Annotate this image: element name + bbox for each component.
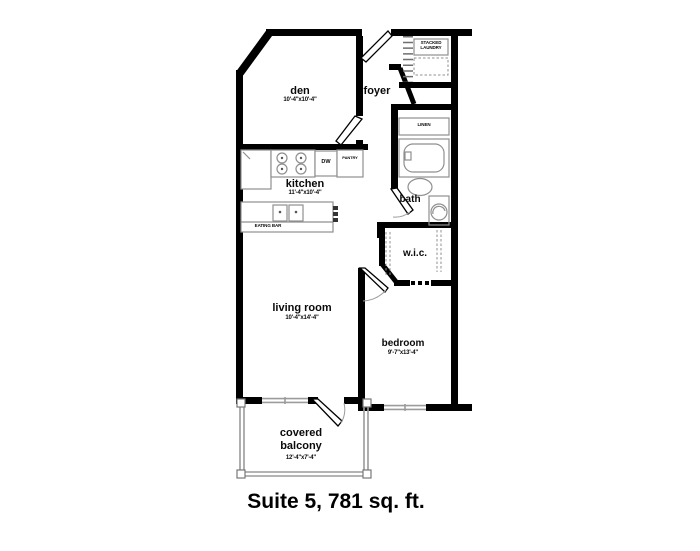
stove-icon xyxy=(271,150,315,177)
sink-drain xyxy=(279,211,282,214)
floor-plan: den 10'-4"x10'-4" foyer STACKED LAUNDRY … xyxy=(0,0,700,551)
kitchen-label: kitchen xyxy=(286,178,325,190)
sink-drain xyxy=(295,211,298,214)
bathroom-sink xyxy=(408,179,432,196)
wall-segment xyxy=(391,29,472,36)
burner-dot xyxy=(300,168,302,170)
wall-segment xyxy=(394,280,410,286)
balcony-post xyxy=(363,399,371,407)
laundry-appliance-dashed xyxy=(414,58,448,75)
island-end-detail xyxy=(333,206,338,210)
bedroom-label: bedroom xyxy=(382,338,425,349)
wall-segment xyxy=(344,397,365,404)
wall-segment xyxy=(431,280,451,286)
kitchen-dims: 11'-4"x10'-4" xyxy=(289,190,322,197)
balcony-door-leaf xyxy=(312,399,342,426)
island-end-detail xyxy=(333,218,338,222)
linen-label: LINEN xyxy=(417,123,430,128)
wall-linen-top xyxy=(393,104,451,110)
den-label: den xyxy=(290,85,310,97)
wall-segment xyxy=(426,404,472,411)
balcony-label-line1: covered xyxy=(280,427,322,439)
bedroom-door-arc xyxy=(363,290,386,301)
stacked-laundry-label: STACKED LAUNDRY xyxy=(420,41,441,51)
wall-bath-left xyxy=(391,104,398,190)
plan-title: Suite 5, 781 sq. ft. xyxy=(0,490,672,514)
wall-segment xyxy=(236,70,243,404)
eating-bar-label: EATING BAR xyxy=(255,224,282,229)
toilet-seat xyxy=(433,206,445,214)
bathtub xyxy=(399,139,449,177)
wall-segment xyxy=(451,29,458,411)
island-end-detail xyxy=(333,212,338,216)
wall-segment xyxy=(266,29,362,36)
den-dims: 10'-4"x10'-4" xyxy=(283,97,316,104)
wall-den-divider xyxy=(356,36,363,116)
fridge xyxy=(241,150,271,189)
balcony-post xyxy=(363,470,371,478)
balcony-label-line2: balcony xyxy=(280,440,322,452)
bath-label: bath xyxy=(399,194,420,205)
stacked-laundry-line2: LAUNDRY xyxy=(420,46,441,51)
wic-label: w.i.c. xyxy=(403,248,427,259)
balcony-dims: 12'-4"x7'-4" xyxy=(286,455,316,462)
foyer-label: foyer xyxy=(364,85,391,97)
balcony-post xyxy=(237,470,245,478)
living-room-window xyxy=(262,397,308,404)
bedroom-dims: 9'-7"x13'-4" xyxy=(388,350,418,357)
wall-chamfer xyxy=(240,32,270,73)
toilet-tank xyxy=(429,196,449,225)
burner-dot xyxy=(281,157,283,159)
wall-wic-left xyxy=(379,228,385,266)
floor-plan-canvas xyxy=(0,0,700,551)
burner-dot xyxy=(300,157,302,159)
wall-bedroom-divider xyxy=(358,268,365,404)
burner-dot xyxy=(281,168,283,170)
living-room-label: living room xyxy=(272,302,331,314)
balcony-post xyxy=(237,399,245,407)
entry-door-leaf xyxy=(361,31,392,62)
dishwasher-label: DW xyxy=(321,159,330,165)
wall-kitchen-top xyxy=(236,144,368,150)
bedroom-window xyxy=(384,404,426,411)
pantry-label: PANTRY xyxy=(342,156,357,160)
living-room-dims: 10'-4"x14'-4" xyxy=(285,315,318,322)
